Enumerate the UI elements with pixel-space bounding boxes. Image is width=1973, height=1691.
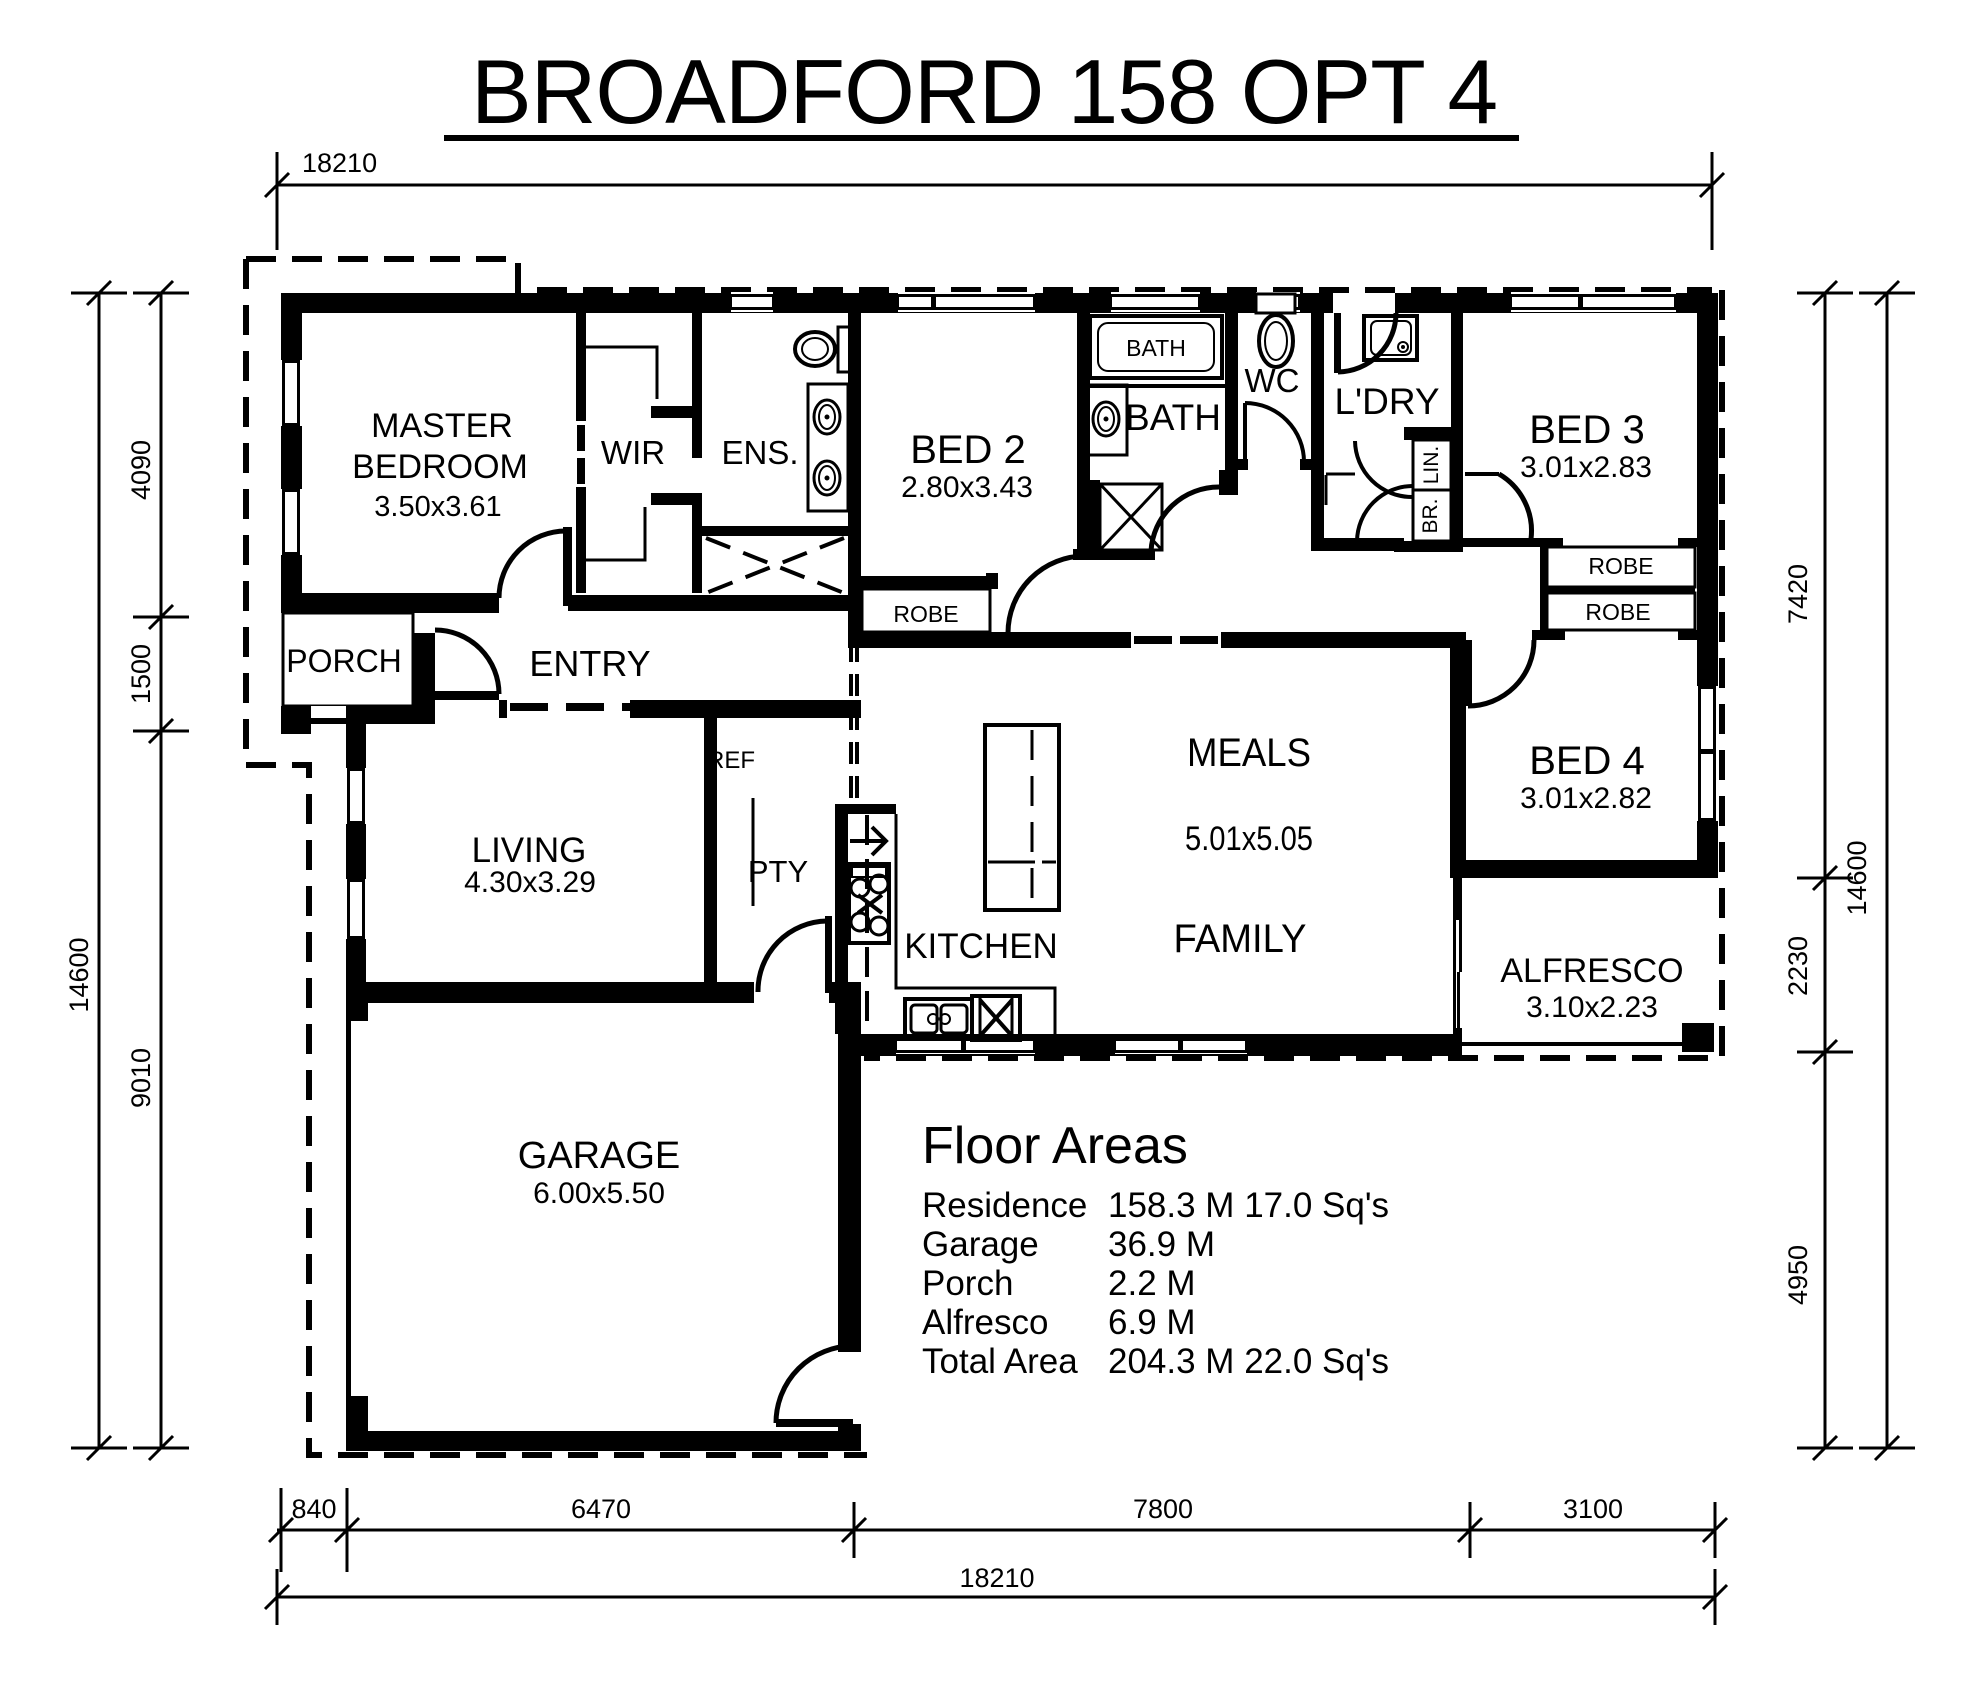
svg-text:18210: 18210 — [959, 1563, 1034, 1593]
svg-text:Floor Areas: Floor Areas — [922, 1117, 1188, 1175]
svg-text:Porch: Porch — [922, 1264, 1013, 1303]
svg-text:BATH: BATH — [1125, 397, 1221, 438]
svg-text:ROBE: ROBE — [893, 601, 958, 627]
svg-text:ENTRY: ENTRY — [529, 643, 650, 684]
svg-text:3.01x2.82: 3.01x2.82 — [1520, 782, 1652, 815]
svg-text:ALFRESCO: ALFRESCO — [1500, 952, 1683, 990]
svg-text:PTY: PTY — [748, 854, 808, 889]
svg-text:3.10x2.23: 3.10x2.23 — [1526, 991, 1658, 1024]
svg-text:6.9 M: 6.9 M — [1108, 1303, 1196, 1342]
svg-text:Garage: Garage — [922, 1225, 1039, 1264]
svg-text:4950: 4950 — [1783, 1245, 1813, 1305]
svg-text:FAMILY: FAMILY — [1174, 917, 1307, 961]
svg-text:36.9 M: 36.9 M — [1108, 1225, 1215, 1264]
svg-text:6470: 6470 — [571, 1494, 631, 1524]
svg-text:GARAGE: GARAGE — [518, 1135, 681, 1177]
svg-text:Total Area: Total Area — [922, 1342, 1078, 1381]
svg-text:3.50x3.61: 3.50x3.61 — [374, 491, 501, 523]
svg-text:158.3 M 17.0 Sq's: 158.3 M 17.0 Sq's — [1108, 1186, 1389, 1225]
svg-text:7800: 7800 — [1133, 1494, 1193, 1524]
svg-text:LIN.: LIN. — [1420, 446, 1443, 485]
svg-text:L'DRY: L'DRY — [1334, 381, 1439, 422]
svg-text:LIVING: LIVING — [472, 831, 587, 870]
svg-text:BROADFORD 158 OPT 4: BROADFORD 158 OPT 4 — [471, 42, 1497, 143]
svg-text:2.80x3.43: 2.80x3.43 — [901, 471, 1033, 504]
svg-text:WC: WC — [1245, 362, 1300, 399]
svg-text:7420: 7420 — [1783, 564, 1813, 624]
svg-text:2230: 2230 — [1783, 936, 1813, 996]
svg-text:BED 2: BED 2 — [910, 428, 1026, 472]
svg-text:ROBE: ROBE — [1585, 599, 1650, 625]
svg-text:MEALS: MEALS — [1187, 731, 1311, 775]
svg-text:BR.: BR. — [1419, 498, 1442, 533]
svg-text:WIR: WIR — [601, 434, 665, 471]
svg-text:BATH: BATH — [1126, 335, 1186, 361]
svg-text:3100: 3100 — [1563, 1494, 1623, 1524]
svg-text:REF: REF — [707, 747, 755, 774]
svg-text:Alfresco: Alfresco — [922, 1303, 1048, 1342]
svg-text:840: 840 — [291, 1494, 336, 1524]
svg-text:204.3 M 22.0 Sq's: 204.3 M 22.0 Sq's — [1108, 1342, 1389, 1381]
svg-text:2.2 M: 2.2 M — [1108, 1264, 1196, 1303]
svg-text:14600: 14600 — [1842, 840, 1872, 915]
svg-text:4.30x3.29: 4.30x3.29 — [464, 866, 596, 899]
svg-text:BED 4: BED 4 — [1529, 739, 1645, 783]
svg-text:9010: 9010 — [126, 1048, 156, 1108]
svg-text:BED 3: BED 3 — [1529, 408, 1645, 452]
svg-text:5.01x5.05: 5.01x5.05 — [1185, 820, 1313, 858]
svg-text:BEDROOM: BEDROOM — [352, 448, 528, 486]
svg-text:6.00x5.50: 6.00x5.50 — [533, 1177, 665, 1210]
svg-text:3.01x2.83: 3.01x2.83 — [1520, 451, 1652, 484]
svg-text:ROBE: ROBE — [1588, 553, 1653, 579]
svg-text:ENS.: ENS. — [721, 434, 798, 471]
svg-text:4090: 4090 — [126, 440, 156, 500]
svg-text:PORCH: PORCH — [286, 643, 402, 679]
svg-text:MASTER: MASTER — [371, 407, 513, 445]
svg-text:14600: 14600 — [64, 937, 94, 1012]
svg-text:1500: 1500 — [126, 644, 156, 704]
svg-text:Residence: Residence — [922, 1186, 1087, 1225]
svg-text:18210: 18210 — [302, 148, 377, 178]
svg-text:KITCHEN: KITCHEN — [904, 927, 1058, 966]
